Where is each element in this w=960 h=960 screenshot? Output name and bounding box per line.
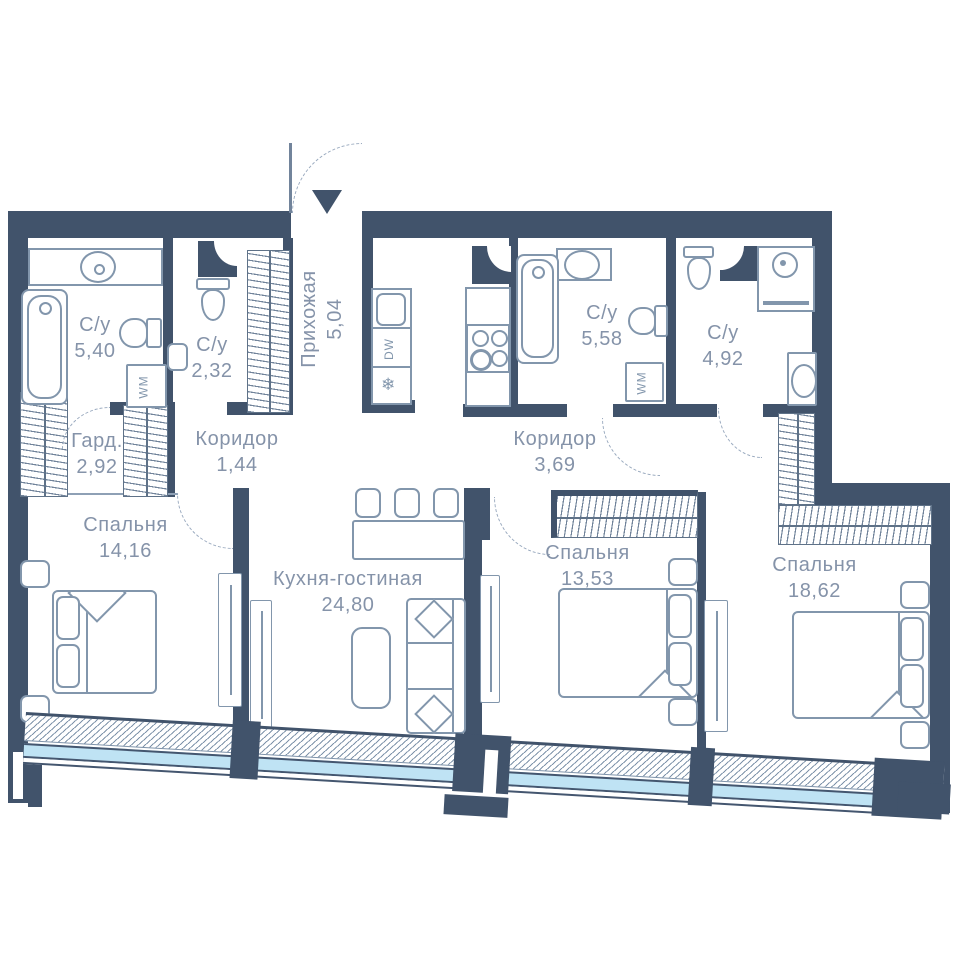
- bed1-pillow-bottom: [56, 644, 80, 688]
- bed1-nightstand-top: [20, 560, 50, 588]
- room-label-su232: С/у 2,32: [172, 332, 252, 384]
- room-name: Кухня-гостиная: [258, 566, 438, 592]
- kitchen-counter-div1: [371, 327, 412, 329]
- stove-burner-4: [491, 350, 508, 367]
- room-name: Гард.: [57, 428, 137, 454]
- su492-shower-dot: [780, 260, 786, 266]
- room-label-su558: С/у 5,58: [562, 300, 642, 352]
- su558-toilet-tank: [654, 305, 668, 337]
- wall-balcony-slot: [483, 750, 499, 797]
- wall-bed2-door-stub: [482, 488, 490, 540]
- su540-washer-label: WM: [137, 375, 151, 398]
- bed3-entry-arc: [718, 408, 762, 458]
- su558-bathtub-drain: [532, 266, 545, 279]
- window-mullion-2: [452, 733, 511, 794]
- wall-top-right: [362, 211, 832, 238]
- room-area: 5,58: [562, 326, 642, 352]
- su232-door-swing-icon: [198, 241, 237, 277]
- kitchen-counter-div2: [371, 366, 412, 368]
- room-label-gard: Гард. 2,92: [57, 428, 137, 480]
- bed1-door-panel-b: [250, 600, 272, 730]
- wall-stub-su558: [613, 404, 717, 417]
- bed1-door-arc: [177, 493, 233, 549]
- room-label-bedroom2: Спальня 13,53: [530, 540, 645, 592]
- stove-burner-1: [472, 330, 489, 347]
- room-label-hallway: Прихожая 5,04: [296, 264, 348, 374]
- room-area: 24,80: [258, 592, 438, 618]
- wall-right-corner: [897, 782, 951, 815]
- window-mullion-1: [229, 720, 260, 780]
- entrance-door-leaf: [289, 143, 292, 213]
- bed3-wardrobe-horizontal: [778, 505, 932, 545]
- bed3-nightstand-bottom: [900, 721, 930, 749]
- room-area: 13,53: [530, 566, 645, 592]
- room-name: Коридор: [192, 426, 282, 452]
- su232-toilet-bowl: [201, 289, 225, 321]
- su558-washer-label: WM: [635, 371, 649, 394]
- hallway-closet: [247, 250, 290, 413]
- stove-burner-2: [491, 330, 508, 347]
- bed2-door-panel: [480, 575, 500, 703]
- room-area: 3,69: [510, 452, 600, 478]
- room-name: Спальня: [757, 552, 872, 578]
- kitchen-door-swing-icon: [472, 246, 511, 284]
- bed3-wardrobe-vertical: [778, 413, 815, 505]
- room-area: 2,32: [172, 358, 252, 384]
- room-area: 1,44: [192, 452, 282, 478]
- bed2-wardrobe: [551, 490, 698, 538]
- room-name: Прихожая: [296, 264, 322, 374]
- window-mullion-3: [688, 747, 715, 806]
- bar-table: [352, 520, 465, 560]
- room-label-koridor144: Коридор 1,44: [192, 426, 282, 478]
- sofa-seat-div1: [408, 642, 453, 644]
- bed1-pillow-top: [56, 596, 80, 640]
- bar-stool-1: [355, 488, 381, 518]
- room-name: С/у: [55, 312, 135, 338]
- room-name: С/у: [172, 332, 252, 358]
- bed3-door-panel: [704, 600, 728, 732]
- coffee-table: [351, 627, 391, 709]
- bed1-door-panel-a: [218, 573, 242, 707]
- sofa-seat-div2: [408, 688, 453, 690]
- su540-sink-drain: [94, 264, 105, 275]
- room-area: 5,04: [322, 264, 348, 374]
- bar-stool-3: [433, 488, 459, 518]
- room-name: Коридор: [510, 426, 600, 452]
- su492-door-swing-cut: [720, 246, 744, 270]
- floor-plan: WM DW ❄ WM: [0, 0, 960, 960]
- room-area: 5,40: [55, 338, 135, 364]
- kitchen-sink: [376, 293, 406, 326]
- room-name: С/у: [683, 320, 763, 346]
- kitchen-door-swing-cut: [487, 246, 511, 272]
- room-label-su492: С/у 4,92: [683, 320, 763, 372]
- bed3-pillow-bottom: [900, 664, 924, 708]
- bed2-nightstand-bottom: [668, 698, 698, 726]
- bed2-pillow-bottom: [668, 642, 692, 686]
- wall-left-slot: [13, 752, 23, 799]
- su558-door-arc: [602, 418, 660, 476]
- bed3-nightstand-top: [900, 581, 930, 609]
- fridge-icon: ❄: [381, 375, 396, 395]
- su492-shower-drainbar: [763, 301, 809, 305]
- room-label-su540: С/у 5,40: [55, 312, 135, 364]
- su558-sink: [564, 250, 600, 280]
- room-label-bedroom3: Спальня 18,62: [757, 552, 872, 604]
- su492-sink-basin: [791, 364, 817, 398]
- room-area: 2,92: [57, 454, 137, 480]
- room-area: 18,62: [757, 578, 872, 604]
- stove-burner-3: [470, 349, 492, 371]
- su540-bathtub-drain: [39, 302, 52, 315]
- bed2-nightstand-top: [668, 558, 698, 586]
- room-name: Спальня: [68, 512, 183, 538]
- room-area: 14,16: [68, 538, 183, 564]
- room-label-kitchen-living: Кухня-гостиная 24,80: [258, 566, 438, 618]
- room-name: Спальня: [530, 540, 645, 566]
- wall-balcony-foot: [443, 794, 508, 818]
- su492-door-swing-icon: [720, 246, 758, 281]
- dishwasher-label: DW: [382, 338, 396, 360]
- bed3-pillow-top: [900, 617, 924, 661]
- room-label-koridor369: Коридор 3,69: [510, 426, 600, 478]
- room-name: С/у: [562, 300, 642, 326]
- entrance-arrow-icon: [312, 190, 342, 214]
- room-area: 4,92: [683, 346, 763, 372]
- su232-door-swing-cut: [214, 241, 237, 266]
- su540-toilet-tank: [146, 318, 162, 348]
- bar-stool-2: [394, 488, 420, 518]
- room-label-bedroom1: Спальня 14,16: [68, 512, 183, 564]
- wall-top-left: [8, 211, 291, 238]
- bed2-pillow-top: [668, 594, 692, 638]
- su492-toilet-bowl: [687, 257, 711, 290]
